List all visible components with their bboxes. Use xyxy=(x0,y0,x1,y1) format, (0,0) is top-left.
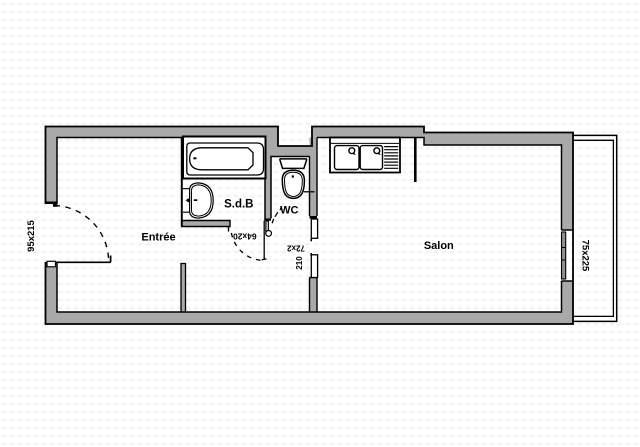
svg-text:64x20: 64x20 xyxy=(233,232,257,242)
svg-text:95x215: 95x215 xyxy=(26,219,37,251)
svg-text:75x225: 75x225 xyxy=(580,240,591,272)
svg-text:S.d.B: S.d.B xyxy=(224,199,253,211)
svg-text:WC: WC xyxy=(280,204,298,216)
svg-text:Salon: Salon xyxy=(424,240,454,252)
svg-text:210: 210 xyxy=(295,256,304,270)
svg-text:Entrée: Entrée xyxy=(141,232,175,244)
svg-text:72x2: 72x2 xyxy=(287,244,305,253)
